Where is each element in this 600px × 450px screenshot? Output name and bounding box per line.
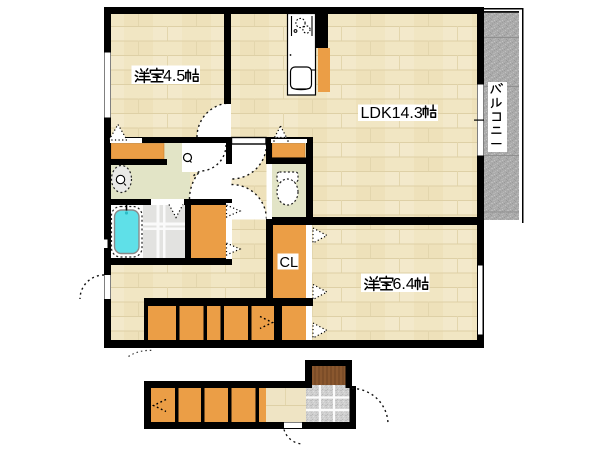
- svg-text:4.5: 4.5: [163, 68, 185, 85]
- svg-text:6.4: 6.4: [393, 276, 415, 293]
- svg-text:CL: CL: [280, 255, 299, 271]
- svg-text:LDK14.3: LDK14.3: [361, 105, 423, 122]
